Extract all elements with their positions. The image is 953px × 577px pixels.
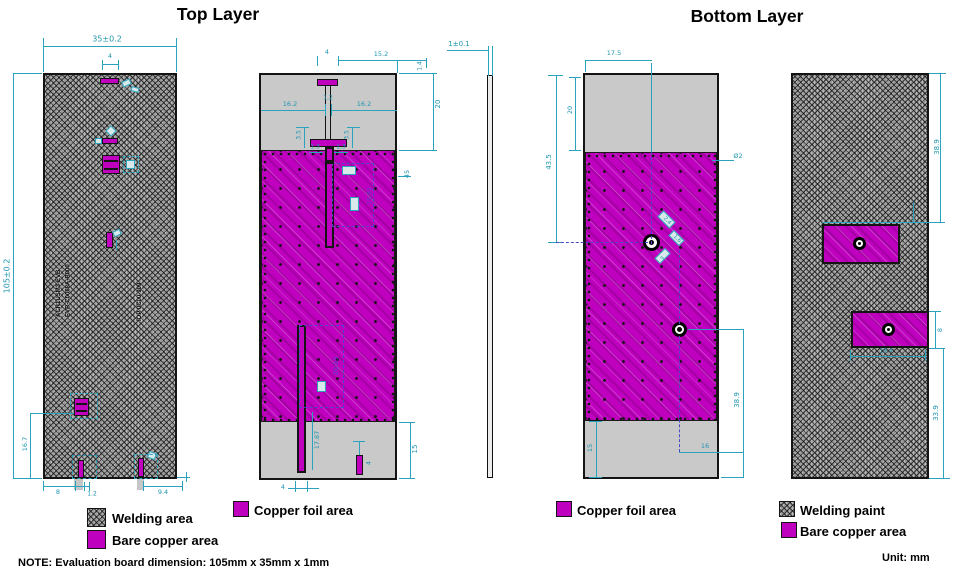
dim-label: 4 xyxy=(281,483,285,491)
annotation-box-blue xyxy=(299,325,344,408)
legend-swatch-welding-paint xyxy=(779,501,795,517)
copper-foil-area-bottom xyxy=(585,152,717,421)
silkscreen-line: EVB-C0068A-B000 xyxy=(65,233,75,317)
legend-label-bare-copper-2: Bare copper area xyxy=(800,524,906,539)
silkscreen-line: IOP 0C00-909 xyxy=(136,277,146,321)
dim-label: 4 xyxy=(325,48,329,56)
dim-label: Ø2 xyxy=(733,152,742,160)
mounting-via-center xyxy=(677,327,682,332)
dim-line xyxy=(338,60,427,61)
rf-connector-via-center xyxy=(649,240,654,245)
dim-line xyxy=(935,311,936,349)
dim-line xyxy=(317,56,318,66)
bottom-pad xyxy=(356,455,363,475)
dim-label: 20 xyxy=(566,106,574,114)
dim-line xyxy=(84,482,85,491)
legend-swatch-copper-foil-left xyxy=(233,501,249,517)
dim-line xyxy=(569,150,581,151)
dim-line xyxy=(721,477,744,478)
legend-label-welding-paint: Welding paint xyxy=(800,503,885,518)
dim-line xyxy=(929,348,945,349)
dim-label: 1.4 xyxy=(417,61,424,71)
dim-label: 8 xyxy=(936,328,944,332)
silkscreen-text-block: ACR1USM3-EVB EVB-C0068A-B000 xyxy=(55,233,81,317)
feed-pad xyxy=(317,79,338,86)
annotation-box xyxy=(123,156,139,173)
dim-label: 1.2 xyxy=(87,491,97,498)
dim-line xyxy=(186,472,187,482)
via-stitch-col xyxy=(261,150,267,422)
dim-line xyxy=(585,60,652,61)
dim-line xyxy=(940,73,941,223)
board-edge-stub xyxy=(74,479,83,490)
dim-line xyxy=(118,60,119,70)
dim-line xyxy=(575,77,576,151)
dim-line xyxy=(929,73,946,74)
component-pad xyxy=(102,138,118,144)
dim-label: 15.2 xyxy=(374,50,388,58)
top-layer-title: Top Layer xyxy=(128,4,308,25)
dim-line xyxy=(943,348,944,479)
annotation-box xyxy=(70,393,98,419)
dim-label: 17.5 xyxy=(607,49,621,57)
dim-label: 43.5 xyxy=(545,154,553,170)
component-pad xyxy=(100,78,119,84)
dim-label: 45 xyxy=(403,170,411,178)
silkscreen-text-block-2: IOP 0C00-909 xyxy=(136,277,149,321)
dim-line xyxy=(399,150,437,151)
dim-line xyxy=(929,311,941,312)
dim-label: 20 xyxy=(434,100,442,109)
dim-line xyxy=(176,38,177,72)
dim-line xyxy=(102,64,119,65)
via-stitch-row xyxy=(585,152,717,158)
annotation-box-blue xyxy=(332,163,374,227)
dim-label: 105±0.2 xyxy=(3,259,12,294)
dim-label: 8 xyxy=(56,488,60,496)
dim-line xyxy=(433,73,434,151)
legend-swatch-bare-copper xyxy=(87,530,106,549)
dim-line xyxy=(13,478,42,479)
legend-label-bare-copper: Bare copper area xyxy=(112,533,218,548)
note-text: NOTE: Evaluation board dimension: 105mm … xyxy=(18,557,329,569)
legend-label-copper-foil-left: Copper foil area xyxy=(254,503,353,518)
pcb-drawing-canvas: Top Layer Bottom Layer ACR1USM3-EVB EVB-… xyxy=(0,0,953,577)
dim-line xyxy=(399,422,415,423)
dim-line xyxy=(585,60,586,72)
silkscreen-line: ACR1USM3-EVB xyxy=(55,233,65,317)
dim-label: 38.9 xyxy=(933,139,941,155)
dim-line xyxy=(399,73,437,74)
via-stitch-col xyxy=(389,150,395,422)
dim-label: 1±0.1 xyxy=(448,40,469,48)
annotation-box xyxy=(134,454,158,479)
dim-line xyxy=(43,481,44,491)
dim-line xyxy=(548,242,563,243)
dim-line xyxy=(929,478,950,479)
dim-line xyxy=(43,486,76,487)
bottom-layer-title: Bottom Layer xyxy=(652,6,842,27)
dim-label: 9.4 xyxy=(158,488,168,496)
feed-t-bar xyxy=(310,139,347,147)
legend-swatch-bare-copper-2 xyxy=(781,522,797,538)
dim-line xyxy=(182,481,183,491)
dim-label: 38.9 xyxy=(733,392,741,408)
dim-line xyxy=(102,60,103,70)
dim-line xyxy=(13,73,42,74)
via-stitch-col xyxy=(585,152,591,421)
via-stitch-row xyxy=(261,416,395,422)
dim-line xyxy=(338,56,339,66)
legend-swatch-welding-area xyxy=(87,508,106,527)
board-edge-stub xyxy=(137,479,144,490)
dim-line xyxy=(743,329,744,478)
board-bottom-welding-view xyxy=(791,73,929,479)
annotation-chip xyxy=(95,138,102,144)
dim-line xyxy=(447,50,489,51)
dim-line xyxy=(295,481,296,492)
dim-line xyxy=(13,73,14,479)
legend-label-welding-area: Welding area xyxy=(112,511,193,526)
bare-copper-via-1-center xyxy=(858,242,861,245)
bare-copper-via-2-center xyxy=(887,328,890,331)
dim-line xyxy=(43,38,44,72)
component-pad xyxy=(106,232,113,248)
dim-label: 15 xyxy=(411,445,419,454)
legend-swatch-copper-foil-right xyxy=(556,501,572,517)
dim-line xyxy=(43,46,177,47)
dim-line xyxy=(397,60,398,73)
dim-line xyxy=(492,46,493,76)
dim-line xyxy=(399,478,415,479)
dim-label: 35±0.2 xyxy=(92,35,122,44)
dim-line xyxy=(177,477,190,478)
dim-line xyxy=(410,422,411,479)
dim-line xyxy=(556,75,557,243)
via-stitch-row xyxy=(585,415,717,421)
feed-line xyxy=(325,86,331,139)
dim-line xyxy=(488,46,489,76)
dim-line xyxy=(398,176,411,177)
dim-line xyxy=(426,58,427,68)
dim-label: 33.9 xyxy=(932,405,940,421)
dim-line xyxy=(548,75,563,76)
dim-line xyxy=(288,488,319,489)
via-stitch-col xyxy=(711,152,717,421)
dim-line xyxy=(569,77,581,78)
dim-label: 4 xyxy=(108,52,112,60)
board-side-view xyxy=(487,75,493,478)
dim-line xyxy=(143,486,183,487)
unit-text: Unit: mm xyxy=(882,552,930,564)
dim-line xyxy=(89,482,90,491)
dim-line xyxy=(307,481,308,492)
dim-line xyxy=(30,413,31,478)
component-pad xyxy=(102,155,120,174)
dim-label: 16.7 xyxy=(21,437,29,451)
annotation-box xyxy=(72,455,97,479)
legend-label-copper-foil-right: Copper foil area xyxy=(577,503,676,518)
